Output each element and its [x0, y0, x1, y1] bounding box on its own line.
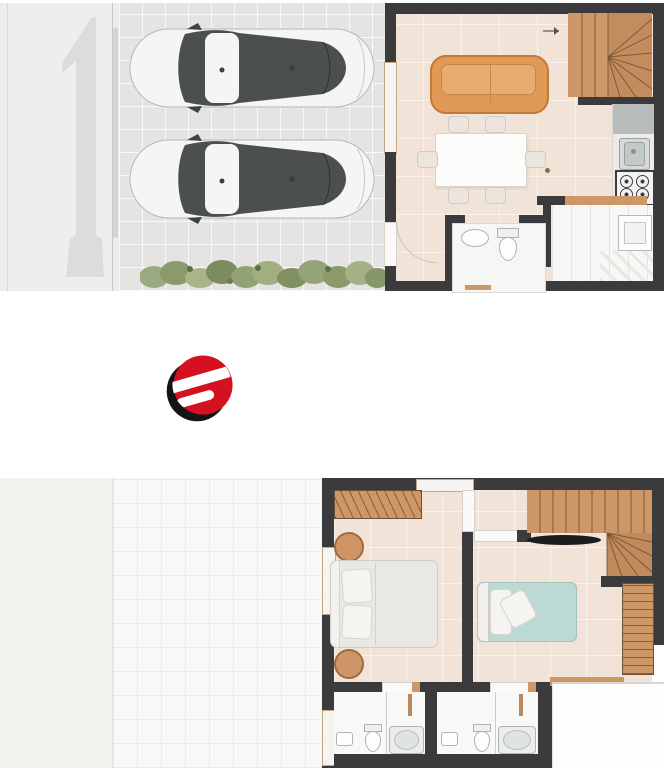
bath-divider-wall [425, 682, 437, 768]
upper-floor-interior [322, 478, 664, 768]
burner-icon [636, 175, 649, 188]
stair-direction-arrow [541, 23, 567, 37]
wall-bottom [334, 754, 552, 768]
car-top-view-1 [127, 22, 377, 114]
kitchen-countertop [613, 104, 654, 134]
wardrobe-bedroom1 [334, 490, 422, 519]
bath-door-sill [465, 285, 491, 290]
wall-left-a [385, 3, 396, 62]
washbasin [461, 229, 489, 247]
bath-right-wall [538, 682, 552, 768]
pillow [341, 568, 373, 604]
duvet-fold [375, 563, 376, 645]
sidewalk-below [0, 478, 112, 768]
hedge [140, 255, 385, 291]
bath2-door-jamb [528, 682, 536, 692]
entry-door [384, 222, 397, 268]
sofa-cushion-divider [490, 64, 491, 104]
staircase-upper [527, 490, 652, 592]
gate-rail [113, 28, 118, 238]
bathroom-ground [452, 223, 546, 293]
dining-chair [485, 116, 506, 133]
bathroom-1 [334, 692, 425, 754]
staircase-ground [568, 13, 652, 101]
washbasin [441, 732, 458, 746]
dining-chair [417, 151, 438, 168]
sofa [430, 55, 549, 114]
shower-tray [389, 726, 424, 754]
service-area [552, 205, 653, 281]
service-lintel [565, 196, 647, 205]
floorplan-sheet [0, 0, 664, 768]
shading-hatch [600, 251, 653, 281]
kitchen-counter [612, 104, 654, 204]
toilet-bowl [499, 237, 517, 261]
sidewalk [0, 3, 112, 291]
window-front [384, 62, 397, 154]
shower-pole [408, 694, 412, 716]
dining-chair [448, 116, 469, 133]
laundry-tank [618, 215, 652, 251]
pavement-numeral-one [18, 11, 110, 283]
shower-basin [503, 730, 531, 750]
dining-chair [525, 151, 546, 168]
bedroom1-door [462, 490, 475, 532]
bathroom-2 [437, 692, 538, 754]
shower-glass [386, 692, 387, 754]
bath-wall-a [334, 682, 382, 692]
wall-top [322, 478, 664, 490]
nightstand-round-2 [334, 649, 364, 679]
ground-floor-interior [385, 3, 664, 291]
pillow [341, 604, 373, 640]
ground-floor-plan [0, 3, 664, 291]
single-bed-teal [477, 582, 577, 642]
kitchen-sink-drain [631, 149, 636, 154]
bath-wall-top-a [445, 215, 465, 223]
kitchen-sink [619, 138, 650, 170]
burner-icon [620, 175, 633, 188]
shower-glass [495, 692, 496, 754]
terrace [552, 682, 664, 768]
bed-headboard [331, 561, 340, 647]
shower-pole [519, 694, 523, 716]
bedroom2-door [474, 530, 519, 542]
dining-chair [448, 187, 469, 204]
toilet-bowl [365, 731, 381, 752]
upper-floor-plan [0, 478, 664, 768]
dining-chair [485, 187, 506, 204]
car-top-view-2 [127, 133, 377, 225]
washbasin [336, 732, 353, 746]
bath1-door-jamb [412, 682, 420, 692]
kitchen-sink-bowl [624, 142, 645, 166]
sidewalk-joint-line [7, 3, 8, 291]
service-wall [537, 196, 565, 205]
double-bed [330, 560, 438, 648]
wall-left-b [385, 152, 396, 222]
wall-tv [527, 535, 601, 545]
entry-door-swing [396, 222, 437, 263]
toilet-bowl [474, 731, 490, 752]
closet-bedroom2 [622, 583, 654, 675]
nightstand-round-1 [334, 532, 364, 562]
bed-headboard [478, 583, 489, 641]
sofa-seat [441, 64, 536, 95]
bath-wall-top-b [519, 215, 545, 223]
bedroom-divider-wall [462, 530, 473, 692]
garage-roof [112, 478, 331, 768]
faucet-icon [545, 168, 550, 173]
wall-right [653, 3, 664, 291]
shower-tray [498, 726, 536, 754]
dining-table [435, 133, 527, 187]
brand-logo-e-icon [163, 351, 237, 425]
laundry-tank-basin [624, 222, 646, 244]
wall-left-c [385, 266, 396, 291]
shower-basin [394, 730, 419, 750]
